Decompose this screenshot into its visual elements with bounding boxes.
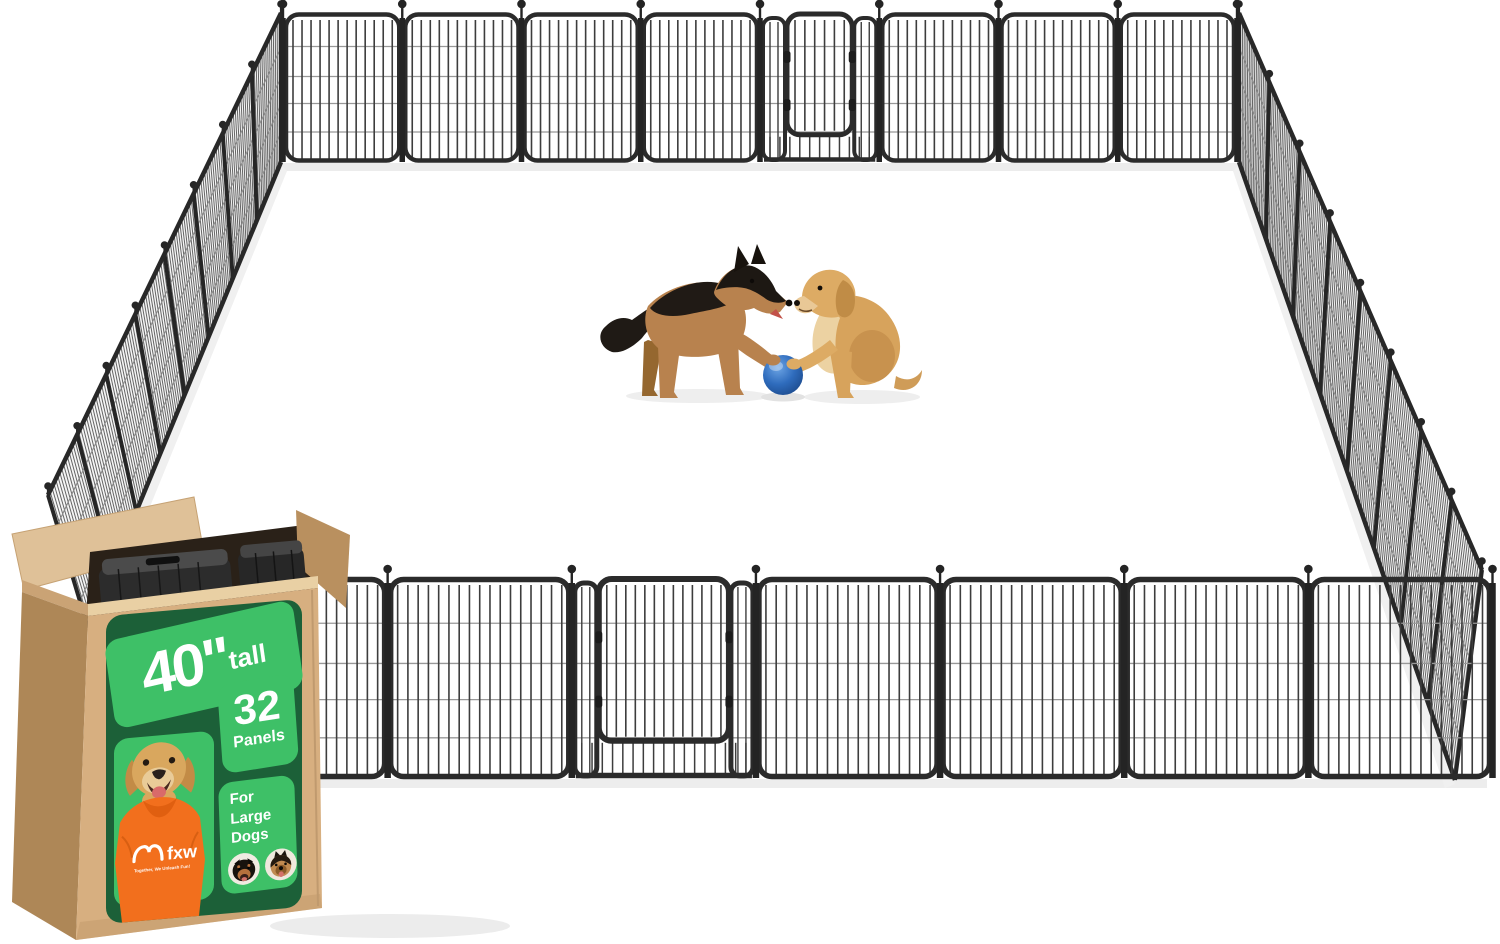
golden-tail: [894, 370, 922, 390]
label-dog-photo: fxw Together, We Unleash Fun!: [110, 719, 214, 924]
golden-eye: [818, 286, 823, 291]
golden-haunch: [849, 330, 895, 382]
gsd-nose: [786, 300, 793, 307]
golden-nose: [794, 300, 800, 306]
back-wall-with-gate: [279, 0, 1242, 162]
gsd-eye: [750, 279, 754, 283]
box-label: 40" tall fxw Together, We Unleash Fun! 3…: [106, 599, 302, 924]
golden-retriever-dog: [790, 270, 922, 398]
gsd-ear-right: [751, 244, 766, 264]
audience-dog-photos: [227, 844, 298, 887]
gsd-paw: [766, 355, 781, 366]
rottweiler-photo: [227, 849, 262, 888]
golden-paw: [787, 359, 802, 370]
box-left-side: [12, 592, 88, 940]
front-wall-with-gate: [199, 565, 1497, 778]
brand-wordmark: fxw: [167, 841, 198, 864]
height-unit: tall: [227, 640, 268, 674]
german-shepherd-photo: [263, 844, 298, 883]
label-audience-panel: For Large Dogs: [218, 774, 298, 895]
label-panel-count: 32 Panels: [217, 673, 299, 774]
page: { "scene": { "fence": { "total_panels": …: [0, 0, 1500, 944]
